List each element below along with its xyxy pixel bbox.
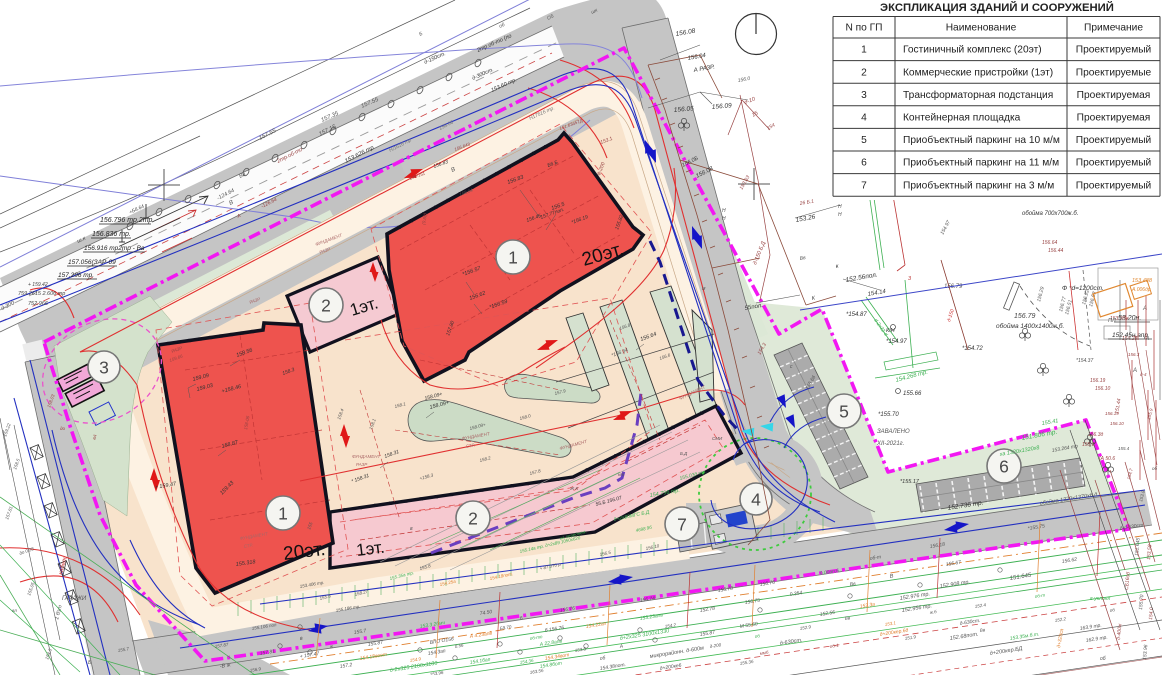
- svg-text:+ 159.42: + 159.42: [28, 282, 48, 288]
- svg-text:N по ГП: N по ГП: [845, 23, 882, 34]
- svg-text:6: 6: [861, 158, 867, 169]
- svg-text:Проектируемые: Проектируемые: [1076, 67, 1152, 78]
- svg-text:Проектируемая: Проектируемая: [1077, 90, 1151, 101]
- svg-text:Приобъектный паркинг на 3 м/м: Приобъектный паркинг на 3 м/м: [903, 179, 1054, 191]
- svg-text:156.19: 156.19: [1105, 411, 1119, 416]
- svg-text:2: 2: [468, 509, 478, 529]
- svg-text:в-уклонл: в-уклонл: [1090, 596, 1110, 602]
- svg-text:*155.70: *155.70: [878, 412, 899, 418]
- svg-text:Контейнерная площадка: Контейнерная площадка: [903, 113, 1021, 124]
- svg-text:Коммерческие пристройки (1эт): Коммерческие пристройки (1эт): [903, 67, 1053, 78]
- svg-text:Наименование: Наименование: [946, 23, 1017, 34]
- svg-text:156.79: 156.79: [1014, 313, 1036, 320]
- svg-text:1: 1: [278, 504, 288, 524]
- svg-text:вл: вл: [12, 608, 17, 613]
- svg-text:ПЛ: ПЛ: [1108, 318, 1116, 324]
- svg-text:*154.37: *154.37: [1076, 358, 1093, 364]
- svg-text:А: А: [1132, 368, 1137, 374]
- svg-text:155.66: 155.66: [903, 391, 922, 397]
- svg-text:Н: Н: [838, 212, 842, 218]
- svg-text:155.4: 155.4: [1118, 446, 1130, 451]
- svg-text:*154.72: *154.72: [962, 346, 983, 352]
- svg-text:(А 50.6: (А 50.6: [1099, 456, 1115, 462]
- svg-text:м: м: [702, 286, 706, 292]
- svg-text:752.966: 752.966: [28, 301, 49, 307]
- svg-text:156.64: 156.64: [1042, 240, 1058, 246]
- svg-text:нт: нт: [618, 472, 624, 477]
- svg-text:4: 4: [751, 490, 761, 510]
- svg-text:6: 6: [999, 457, 1009, 477]
- svg-text:156.10: 156.10: [1095, 386, 1111, 392]
- svg-text:*154.87: *154.87: [846, 312, 867, 318]
- svg-text:д-4: д-4: [1140, 372, 1147, 377]
- svg-text:156.19: 156.19: [1090, 378, 1106, 384]
- svg-text:2: 2: [321, 296, 331, 316]
- svg-text:ХII-2021г.: ХII-2021г.: [876, 441, 904, 447]
- svg-text:4: 4: [861, 113, 867, 124]
- svg-text:об: об: [1100, 656, 1106, 662]
- svg-text:1эт.: 1эт.: [355, 538, 385, 560]
- svg-text:*155.17: *155.17: [900, 479, 920, 485]
- svg-text:ФУНДАМЕНТ: ФУНДАМЕНТ: [352, 454, 381, 459]
- svg-text:ЭКСПЛИКАЦИЯ ЗДАНИЙ И СООРУЖЕНИ: ЭКСПЛИКАЦИЯ ЗДАНИЙ И СООРУЖЕНИЙ: [880, 1, 1114, 14]
- svg-text:153.488: 153.488: [1132, 278, 1153, 284]
- svg-text:Проектируемый: Проектируемый: [1076, 180, 1151, 191]
- svg-text:Приобъектный паркинг на 11 м/м: Приобъектный паркинг на 11 м/м: [903, 157, 1059, 169]
- svg-text:обойма 1400х1400ж.б.: обойма 1400х1400ж.б.: [996, 322, 1064, 330]
- svg-text:СМИ: СМИ: [712, 436, 723, 441]
- svg-text:7: 7: [677, 515, 687, 535]
- svg-text:2: 2: [861, 67, 867, 78]
- svg-text:Ж К: Ж К: [569, 486, 578, 491]
- svg-text:3: 3: [99, 358, 109, 378]
- svg-text:157.056(ЗАР-09: 157.056(ЗАР-09: [68, 259, 116, 266]
- svg-text:5: 5: [839, 402, 849, 422]
- svg-text:А: А: [1145, 336, 1150, 342]
- svg-text:5: 5: [861, 135, 867, 146]
- svg-text:Проектируемый: Проектируемый: [1076, 158, 1151, 169]
- svg-text:3: 3: [861, 90, 867, 101]
- svg-text:в: в: [410, 526, 413, 532]
- svg-text:А.006др: А.006др: [1131, 287, 1151, 293]
- svg-text:Трансформаторная подстанция: Трансформаторная подстанция: [903, 89, 1053, 101]
- svg-text:Н: Н: [722, 216, 726, 222]
- svg-text:обойма 700х700ж.б.: обойма 700х700ж.б.: [1022, 210, 1078, 217]
- svg-text:РАЗР: РАЗР: [356, 462, 367, 467]
- svg-text:об: об: [599, 655, 606, 662]
- svg-text:Проектируемая: Проектируемая: [1077, 113, 1151, 124]
- svg-text:156.10: 156.10: [1110, 421, 1124, 426]
- svg-text:Н: Н: [838, 204, 842, 210]
- svg-text:*154.97: *154.97: [886, 339, 907, 345]
- svg-text:155.8: 155.8: [1082, 442, 1095, 448]
- svg-text:156.44: 156.44: [1048, 248, 1064, 254]
- svg-text:Б.Д: Б.Д: [680, 451, 688, 456]
- svg-text:157.296 тр.: 157.296 тр.: [58, 272, 94, 279]
- svg-text:К/Н: К/Н: [886, 328, 895, 334]
- svg-text:1: 1: [508, 248, 518, 268]
- svg-text:Гостиничный комплекс (20эт): Гостиничный комплекс (20эт): [903, 45, 1042, 56]
- svg-text:ГАРАЖИ: ГАРАЖИ: [62, 596, 87, 602]
- svg-text:Приобъектный паркинг на 10 м/м: Приобъектный паркинг на 10 м/м: [903, 134, 1060, 146]
- svg-text:ЗАВАЛЕНО: ЗАВАЛЕНО: [877, 429, 910, 435]
- svg-text:Проектируемый: Проектируемый: [1076, 45, 1151, 56]
- svg-text:Проектируемый: Проектируемый: [1076, 135, 1151, 146]
- svg-text:156.836 тр.: 156.836 тр.: [92, 231, 131, 238]
- svg-text:156.916 тр2тр - Вв: 156.916 тр2тр - Вв: [84, 245, 145, 252]
- svg-text:об: об: [1152, 466, 1158, 471]
- svg-text:1: 1: [861, 45, 867, 56]
- svg-text:Н: Н: [722, 208, 726, 214]
- svg-text:до: до: [60, 426, 65, 431]
- svg-text:Примечание: Примечание: [1084, 23, 1143, 34]
- svg-text:759.2615 2.606 тр: 759.2615 2.606 тр: [18, 291, 65, 297]
- svg-text:7: 7: [861, 180, 867, 191]
